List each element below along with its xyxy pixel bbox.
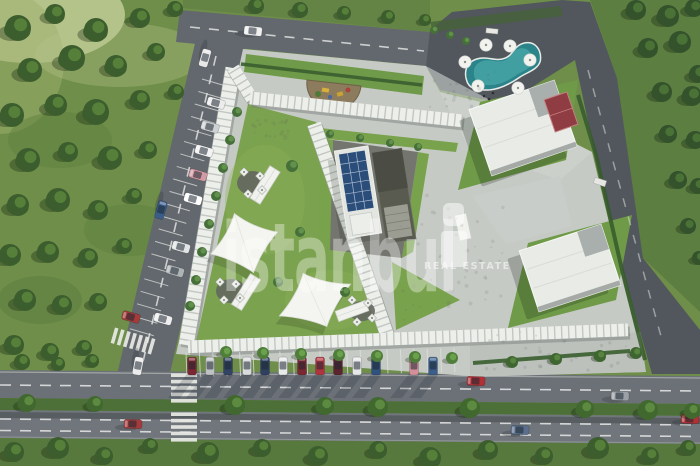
- speckle: [476, 220, 479, 223]
- shrub: [273, 277, 283, 287]
- speckle: [466, 89, 469, 92]
- speckle: [625, 345, 627, 347]
- speckle: [464, 269, 466, 271]
- speckle: [538, 350, 542, 354]
- speckle: [600, 344, 603, 347]
- shrub: [414, 143, 422, 151]
- speckle: [448, 217, 452, 221]
- shrub: [204, 219, 214, 229]
- speckle: [477, 87, 481, 91]
- shrub: [386, 139, 394, 147]
- speckle: [485, 290, 489, 294]
- speckle: [412, 284, 416, 288]
- speckle: [493, 368, 496, 371]
- speckle: [535, 335, 537, 337]
- speckle: [257, 119, 260, 122]
- speckle: [287, 138, 289, 140]
- speckle: [608, 341, 611, 344]
- speckle: [452, 90, 455, 93]
- speckle: [480, 260, 483, 263]
- speckle: [425, 193, 429, 197]
- speckle: [449, 83, 452, 86]
- speckle: [501, 252, 503, 254]
- speckle: [610, 364, 614, 368]
- speckle: [501, 206, 504, 209]
- speckle: [449, 289, 451, 291]
- speckle: [456, 218, 458, 220]
- speckle: [474, 271, 477, 274]
- speckle: [430, 279, 432, 281]
- car: [188, 357, 197, 375]
- speckle: [488, 339, 491, 342]
- car: [244, 26, 263, 37]
- car: [429, 357, 438, 375]
- speckle: [460, 213, 462, 215]
- speckle: [466, 75, 469, 78]
- tree: [0, 103, 24, 127]
- speckle: [271, 122, 273, 124]
- speckle: [437, 306, 439, 308]
- speckle: [520, 331, 522, 333]
- speckle: [498, 260, 500, 262]
- speckle: [447, 92, 449, 94]
- speckle: [401, 290, 404, 293]
- speckle: [273, 123, 276, 126]
- speckle: [490, 246, 492, 248]
- speckle: [274, 135, 276, 137]
- shrub: [340, 287, 350, 297]
- speckle: [280, 120, 284, 124]
- car: [261, 357, 270, 375]
- shrub: [462, 37, 470, 45]
- pool-umbrella: [524, 54, 536, 66]
- shrub: [185, 301, 195, 311]
- shrub: [430, 26, 438, 34]
- speckle: [469, 302, 473, 306]
- speckle: [400, 225, 402, 227]
- car: [316, 357, 325, 375]
- speckle: [258, 123, 261, 126]
- speckle: [616, 361, 619, 364]
- speckle: [421, 223, 424, 226]
- car: [611, 391, 629, 401]
- speckle: [254, 132, 256, 134]
- shrub: [326, 130, 334, 138]
- speckle: [284, 138, 286, 140]
- speckle: [470, 105, 474, 109]
- speckle: [465, 249, 469, 253]
- play-item: [346, 88, 351, 93]
- speckle: [538, 347, 540, 349]
- shrub: [218, 163, 228, 173]
- shrub: [211, 191, 221, 201]
- shrub: [295, 227, 305, 237]
- speckle: [459, 80, 463, 84]
- speckle: [265, 134, 268, 137]
- pool-umbrella: [480, 39, 492, 51]
- speckle: [445, 105, 448, 108]
- shrub: [356, 134, 364, 142]
- speckle: [403, 318, 405, 320]
- speckle: [485, 367, 489, 371]
- speckle: [457, 281, 461, 285]
- speckle: [575, 356, 578, 359]
- shrub: [232, 107, 242, 117]
- speckle: [455, 82, 459, 86]
- speckle: [524, 347, 527, 350]
- speckle: [264, 119, 267, 122]
- speckle: [287, 133, 289, 135]
- speckle: [285, 136, 287, 138]
- speckle: [495, 96, 498, 99]
- speckle: [453, 95, 457, 99]
- speckle: [628, 334, 631, 337]
- shrub: [225, 135, 235, 145]
- speckle: [494, 71, 496, 73]
- speckle: [405, 309, 407, 311]
- shrub: [446, 31, 454, 39]
- person: [488, 98, 491, 101]
- pool-umbrella: [512, 82, 524, 94]
- aerial-site-render: istanbul REAL ESTATE: [0, 0, 700, 466]
- shrub: [286, 160, 298, 172]
- speckle: [572, 353, 575, 356]
- speckle: [438, 256, 440, 258]
- speckle: [434, 309, 436, 311]
- speckle: [539, 365, 542, 368]
- play-item: [328, 95, 332, 99]
- tree: [0, 244, 21, 266]
- speckle: [416, 242, 420, 246]
- speckle: [447, 301, 451, 305]
- speckle: [278, 122, 280, 124]
- speckle: [251, 123, 255, 127]
- speckle: [411, 220, 414, 223]
- speckle: [285, 119, 288, 122]
- car: [353, 357, 362, 375]
- speckle: [562, 339, 566, 343]
- speckle: [496, 84, 499, 87]
- car: [224, 357, 233, 375]
- speckle: [451, 289, 454, 292]
- site-plan-canvas: [0, 0, 700, 466]
- shrub: [197, 247, 207, 257]
- car: [124, 419, 142, 429]
- speckle: [586, 368, 589, 371]
- person: [483, 95, 486, 98]
- speckle: [548, 353, 551, 356]
- deck-bench: [486, 28, 498, 34]
- play-shrub: [315, 91, 321, 97]
- pool-umbrella: [472, 80, 484, 92]
- speckle: [465, 270, 468, 273]
- speckle: [570, 359, 573, 362]
- car: [243, 357, 252, 375]
- speckle: [431, 210, 435, 214]
- speckle: [447, 304, 451, 308]
- speckle: [420, 306, 422, 308]
- speckle: [501, 340, 505, 344]
- speckle: [496, 334, 498, 336]
- pool-umbrella: [504, 40, 516, 52]
- speckle: [287, 129, 290, 132]
- speckle: [488, 78, 490, 80]
- speckle: [446, 207, 450, 211]
- speckle: [403, 245, 405, 247]
- speckle: [474, 246, 476, 248]
- speckle: [484, 299, 486, 301]
- speckle: [487, 73, 490, 76]
- car: [279, 357, 288, 375]
- speckle: [412, 304, 414, 306]
- car: [511, 425, 529, 435]
- car: [467, 376, 485, 386]
- speckle: [483, 276, 487, 280]
- speckle: [444, 98, 447, 101]
- speckle: [279, 132, 282, 135]
- speckle: [285, 122, 287, 124]
- speckle: [433, 79, 436, 82]
- speckle: [480, 97, 482, 99]
- speckle: [464, 276, 466, 278]
- pool-umbrella: [459, 56, 471, 68]
- speckle: [499, 294, 502, 297]
- speckle: [491, 240, 494, 243]
- speckle: [465, 284, 469, 288]
- speckle: [453, 75, 455, 77]
- speckle: [523, 366, 526, 369]
- shrub: [191, 275, 201, 285]
- speckle: [466, 86, 468, 88]
- car: [206, 357, 215, 375]
- speckle: [491, 94, 494, 97]
- speckle: [399, 271, 401, 273]
- speckle: [460, 224, 463, 227]
- speckle: [452, 98, 455, 101]
- speckle: [455, 233, 458, 236]
- speckle: [269, 135, 272, 138]
- speckle: [468, 97, 472, 101]
- speckle: [429, 106, 431, 108]
- solar-building-annex: [350, 212, 375, 235]
